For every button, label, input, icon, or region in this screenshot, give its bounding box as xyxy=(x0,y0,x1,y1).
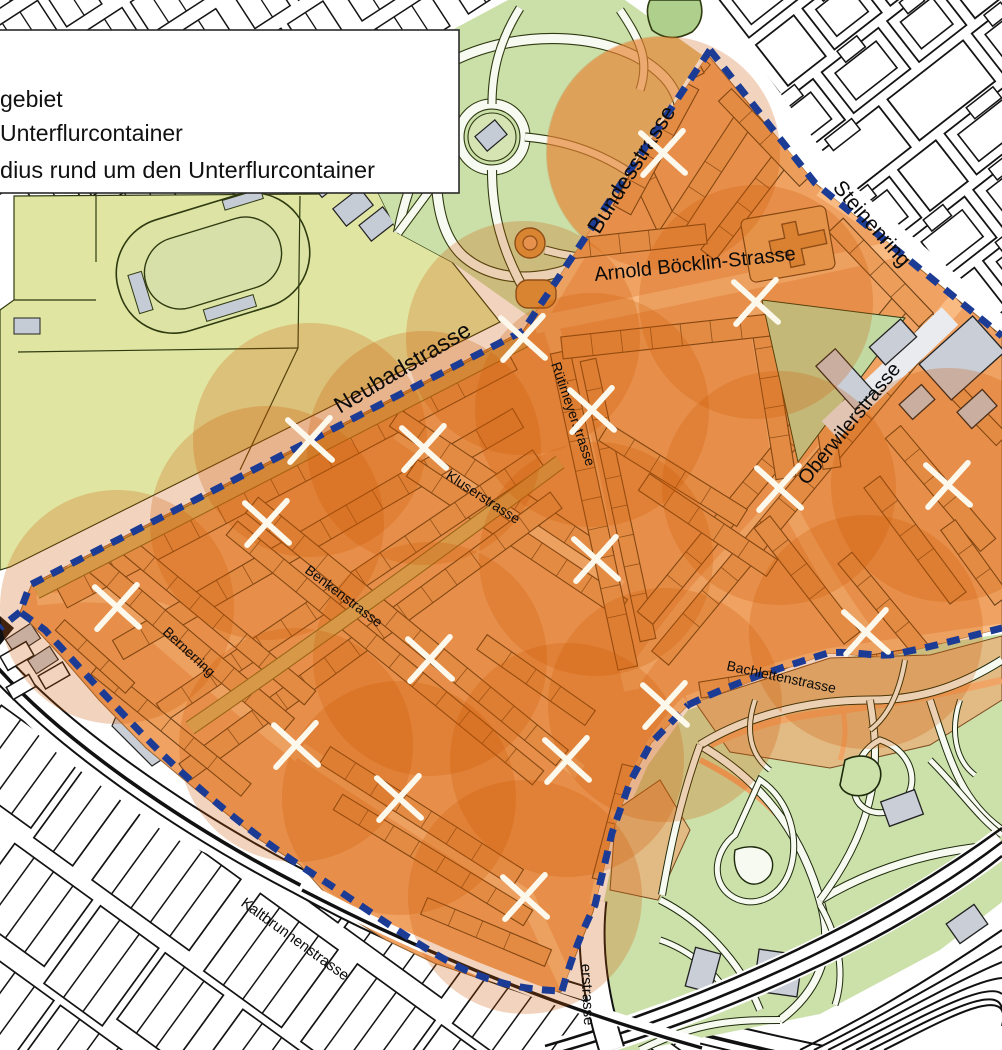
svg-text:dius rund um den Unterflurcont: dius rund um den Unterflurcontainer xyxy=(0,157,375,183)
svg-text:erstrasse: erstrasse xyxy=(577,963,597,1025)
svg-text:Unterflurcontainer: Unterflurcontainer xyxy=(0,120,183,146)
svg-text:gebiet: gebiet xyxy=(0,86,63,112)
